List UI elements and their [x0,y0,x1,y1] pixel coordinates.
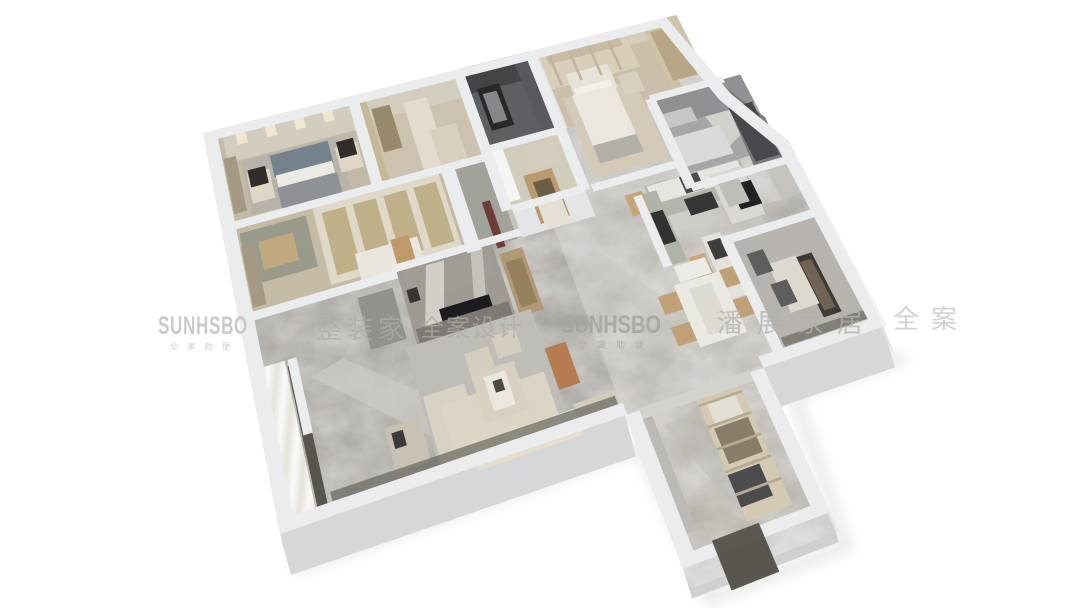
svg-text:SUNHSBO: SUNHSBO [561,311,661,339]
svg-text:全案: 全案 [893,304,969,334]
svg-text:整装家: 整装家 [316,314,409,344]
svg-text:SUNHSBO: SUNHSBO [158,312,248,340]
svg-text:全案设计: 全案设计 [420,315,524,342]
svg-text:潘展家居: 潘展家居 [717,308,877,338]
